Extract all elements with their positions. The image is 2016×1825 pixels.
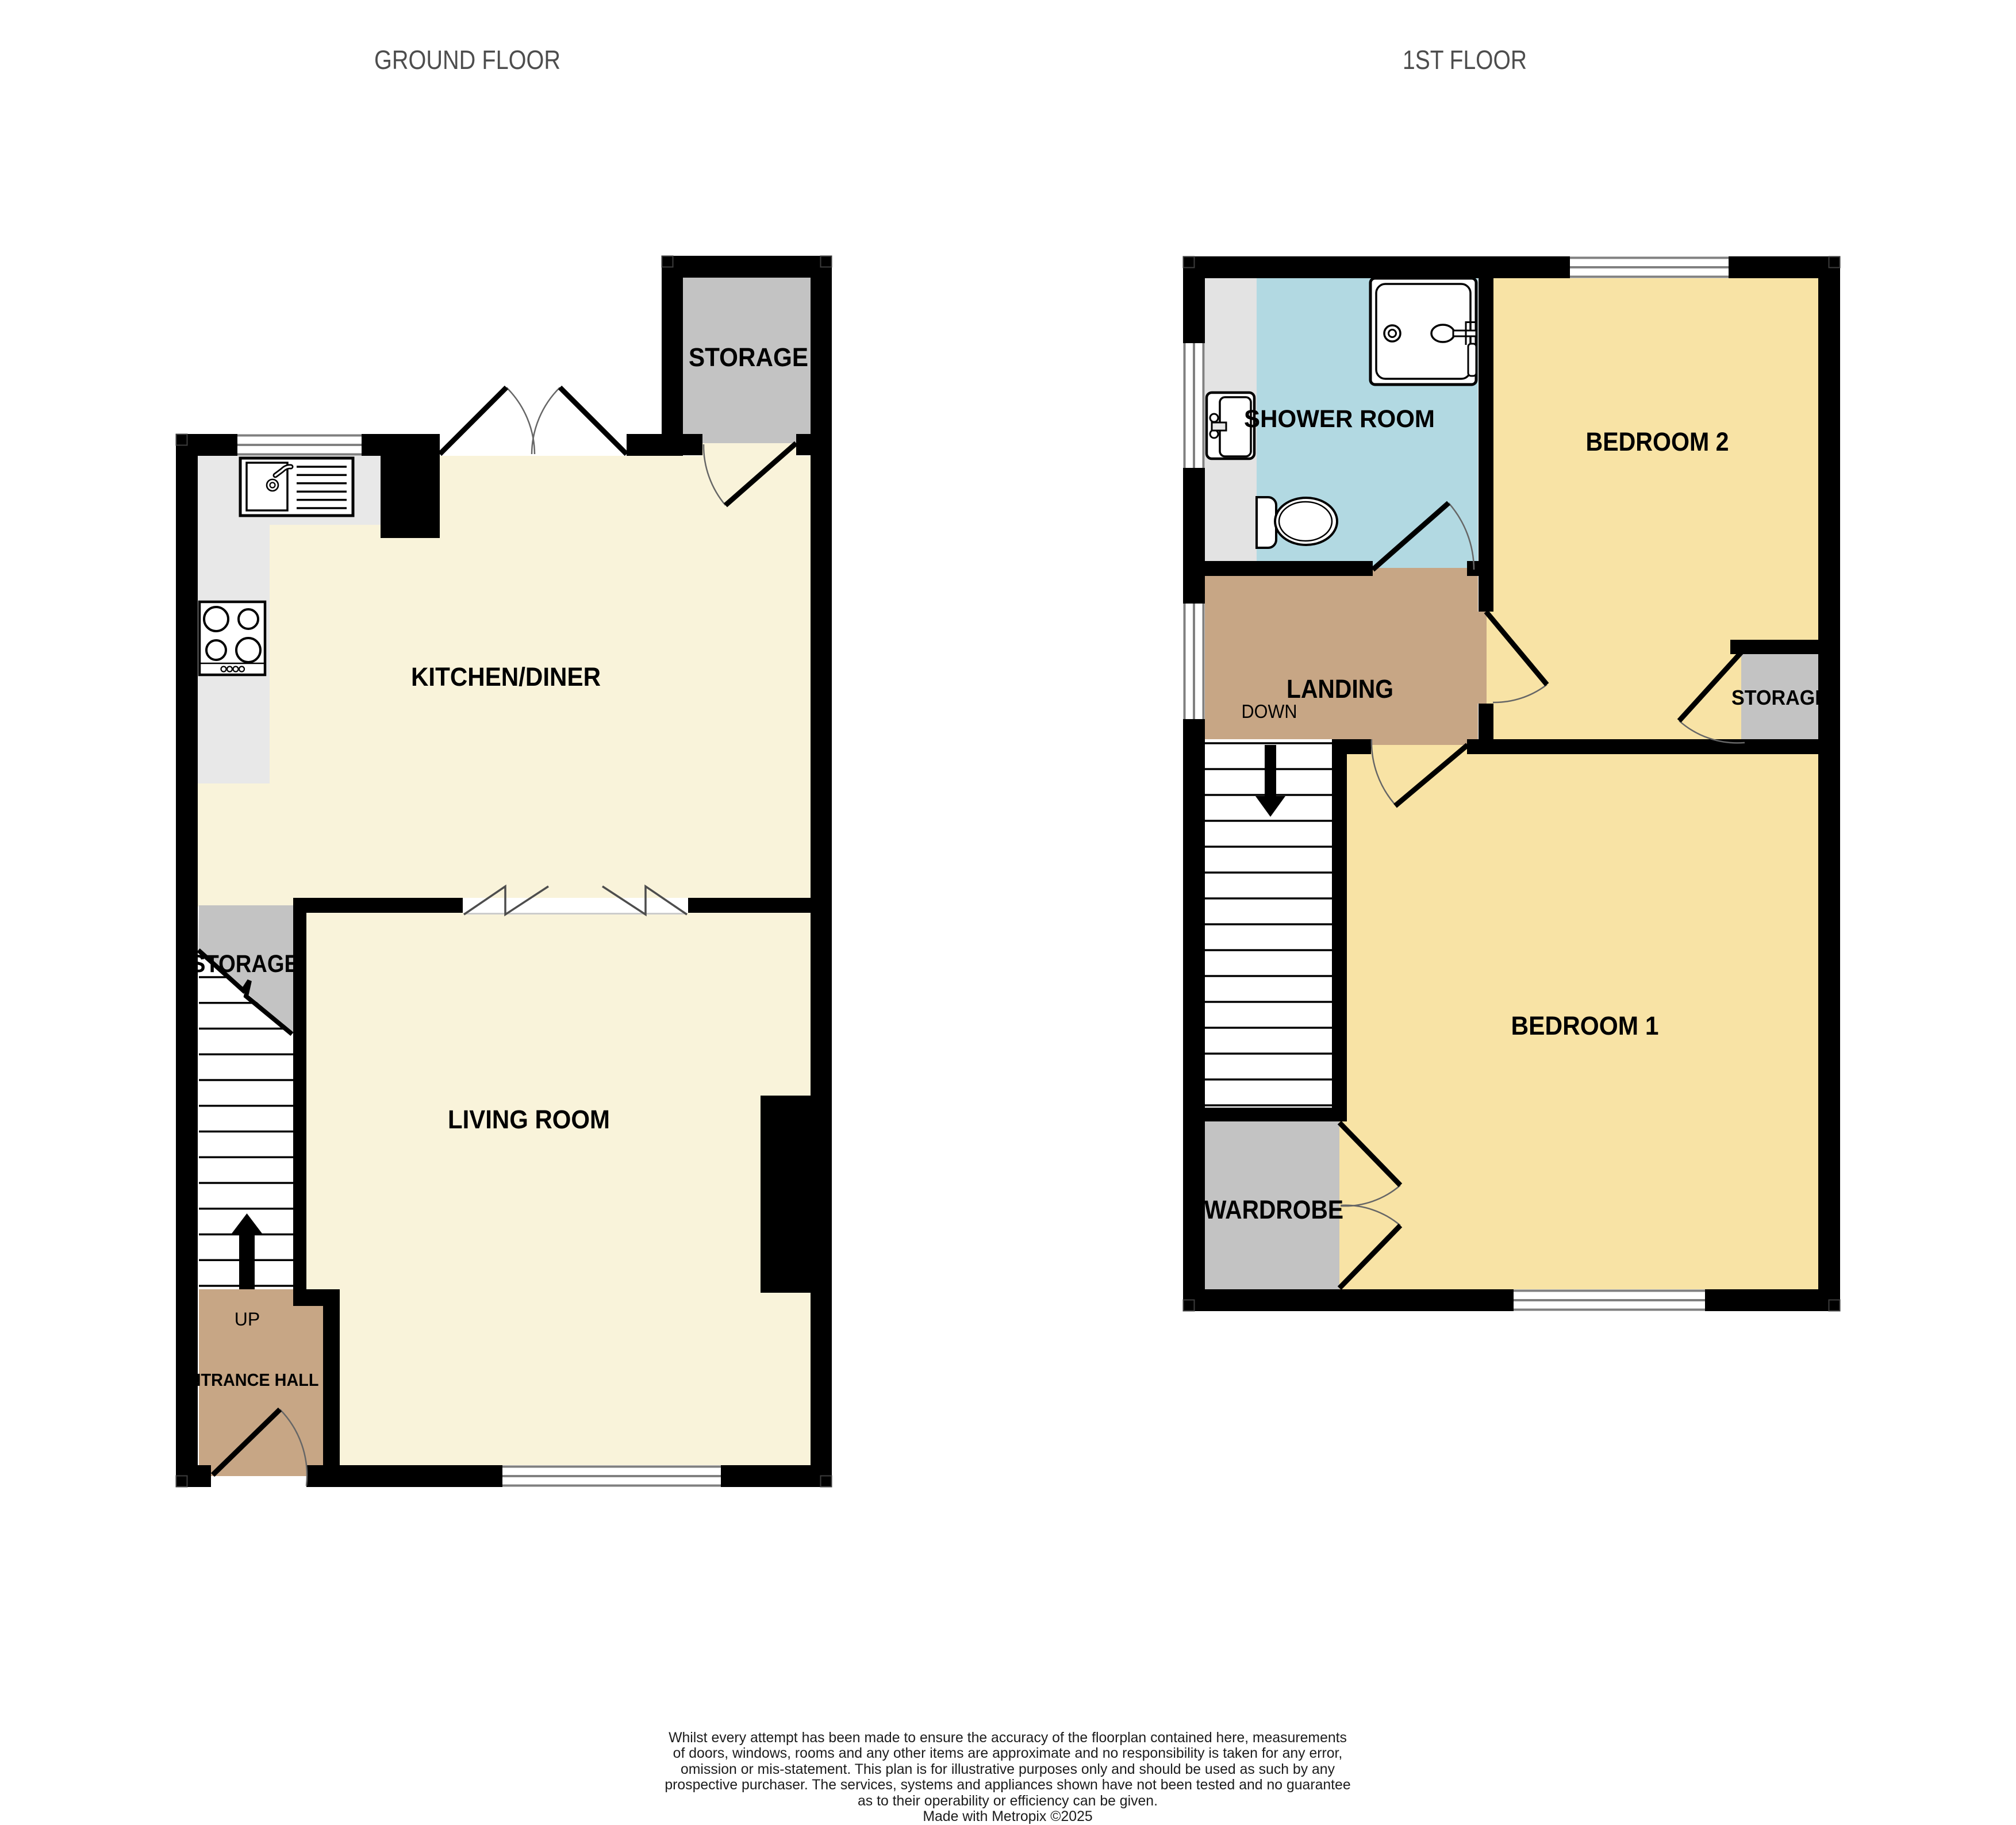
svg-text:Whilst every attempt has been: Whilst every attempt has been made to en… xyxy=(669,1730,1347,1746)
svg-text:SHOWER ROOM: SHOWER ROOM xyxy=(1244,405,1435,433)
svg-text:UP: UP xyxy=(235,1309,260,1330)
svg-text:DOWN: DOWN xyxy=(1242,701,1297,722)
svg-text:as to their operability or eff: as to their operability or efficiency ca… xyxy=(858,1793,1158,1809)
svg-text:STORAGE: STORAGE xyxy=(191,950,299,978)
svg-text:Made with Metropix ©2025: Made with Metropix ©2025 xyxy=(923,1809,1092,1824)
svg-text:prospective purchaser. The ser: prospective purchaser. The services, sys… xyxy=(665,1777,1350,1793)
svg-text:KITCHEN/DINER: KITCHEN/DINER xyxy=(411,662,601,691)
svg-text:1ST FLOOR: 1ST FLOOR xyxy=(1403,45,1527,75)
svg-text:of doors, windows, rooms and a: of doors, windows, rooms and any other i… xyxy=(673,1746,1343,1761)
svg-text:ENTRANCE HALL: ENTRANCE HALL xyxy=(178,1370,319,1390)
svg-text:STORAGE: STORAGE xyxy=(689,343,808,372)
svg-text:BEDROOM 1: BEDROOM 1 xyxy=(1511,1011,1659,1040)
svg-text:STORAGE: STORAGE xyxy=(1731,686,1828,709)
svg-text:LIVING ROOM: LIVING ROOM xyxy=(448,1105,610,1134)
svg-text:GROUND FLOOR: GROUND FLOOR xyxy=(374,45,560,75)
svg-text:LANDING: LANDING xyxy=(1287,674,1393,704)
svg-text:WARDROBE: WARDROBE xyxy=(1204,1195,1343,1224)
svg-text:omission or mis-statement. Thi: omission or mis-statement. This plan is … xyxy=(681,1762,1335,1777)
svg-text:BEDROOM 2: BEDROOM 2 xyxy=(1586,427,1729,456)
